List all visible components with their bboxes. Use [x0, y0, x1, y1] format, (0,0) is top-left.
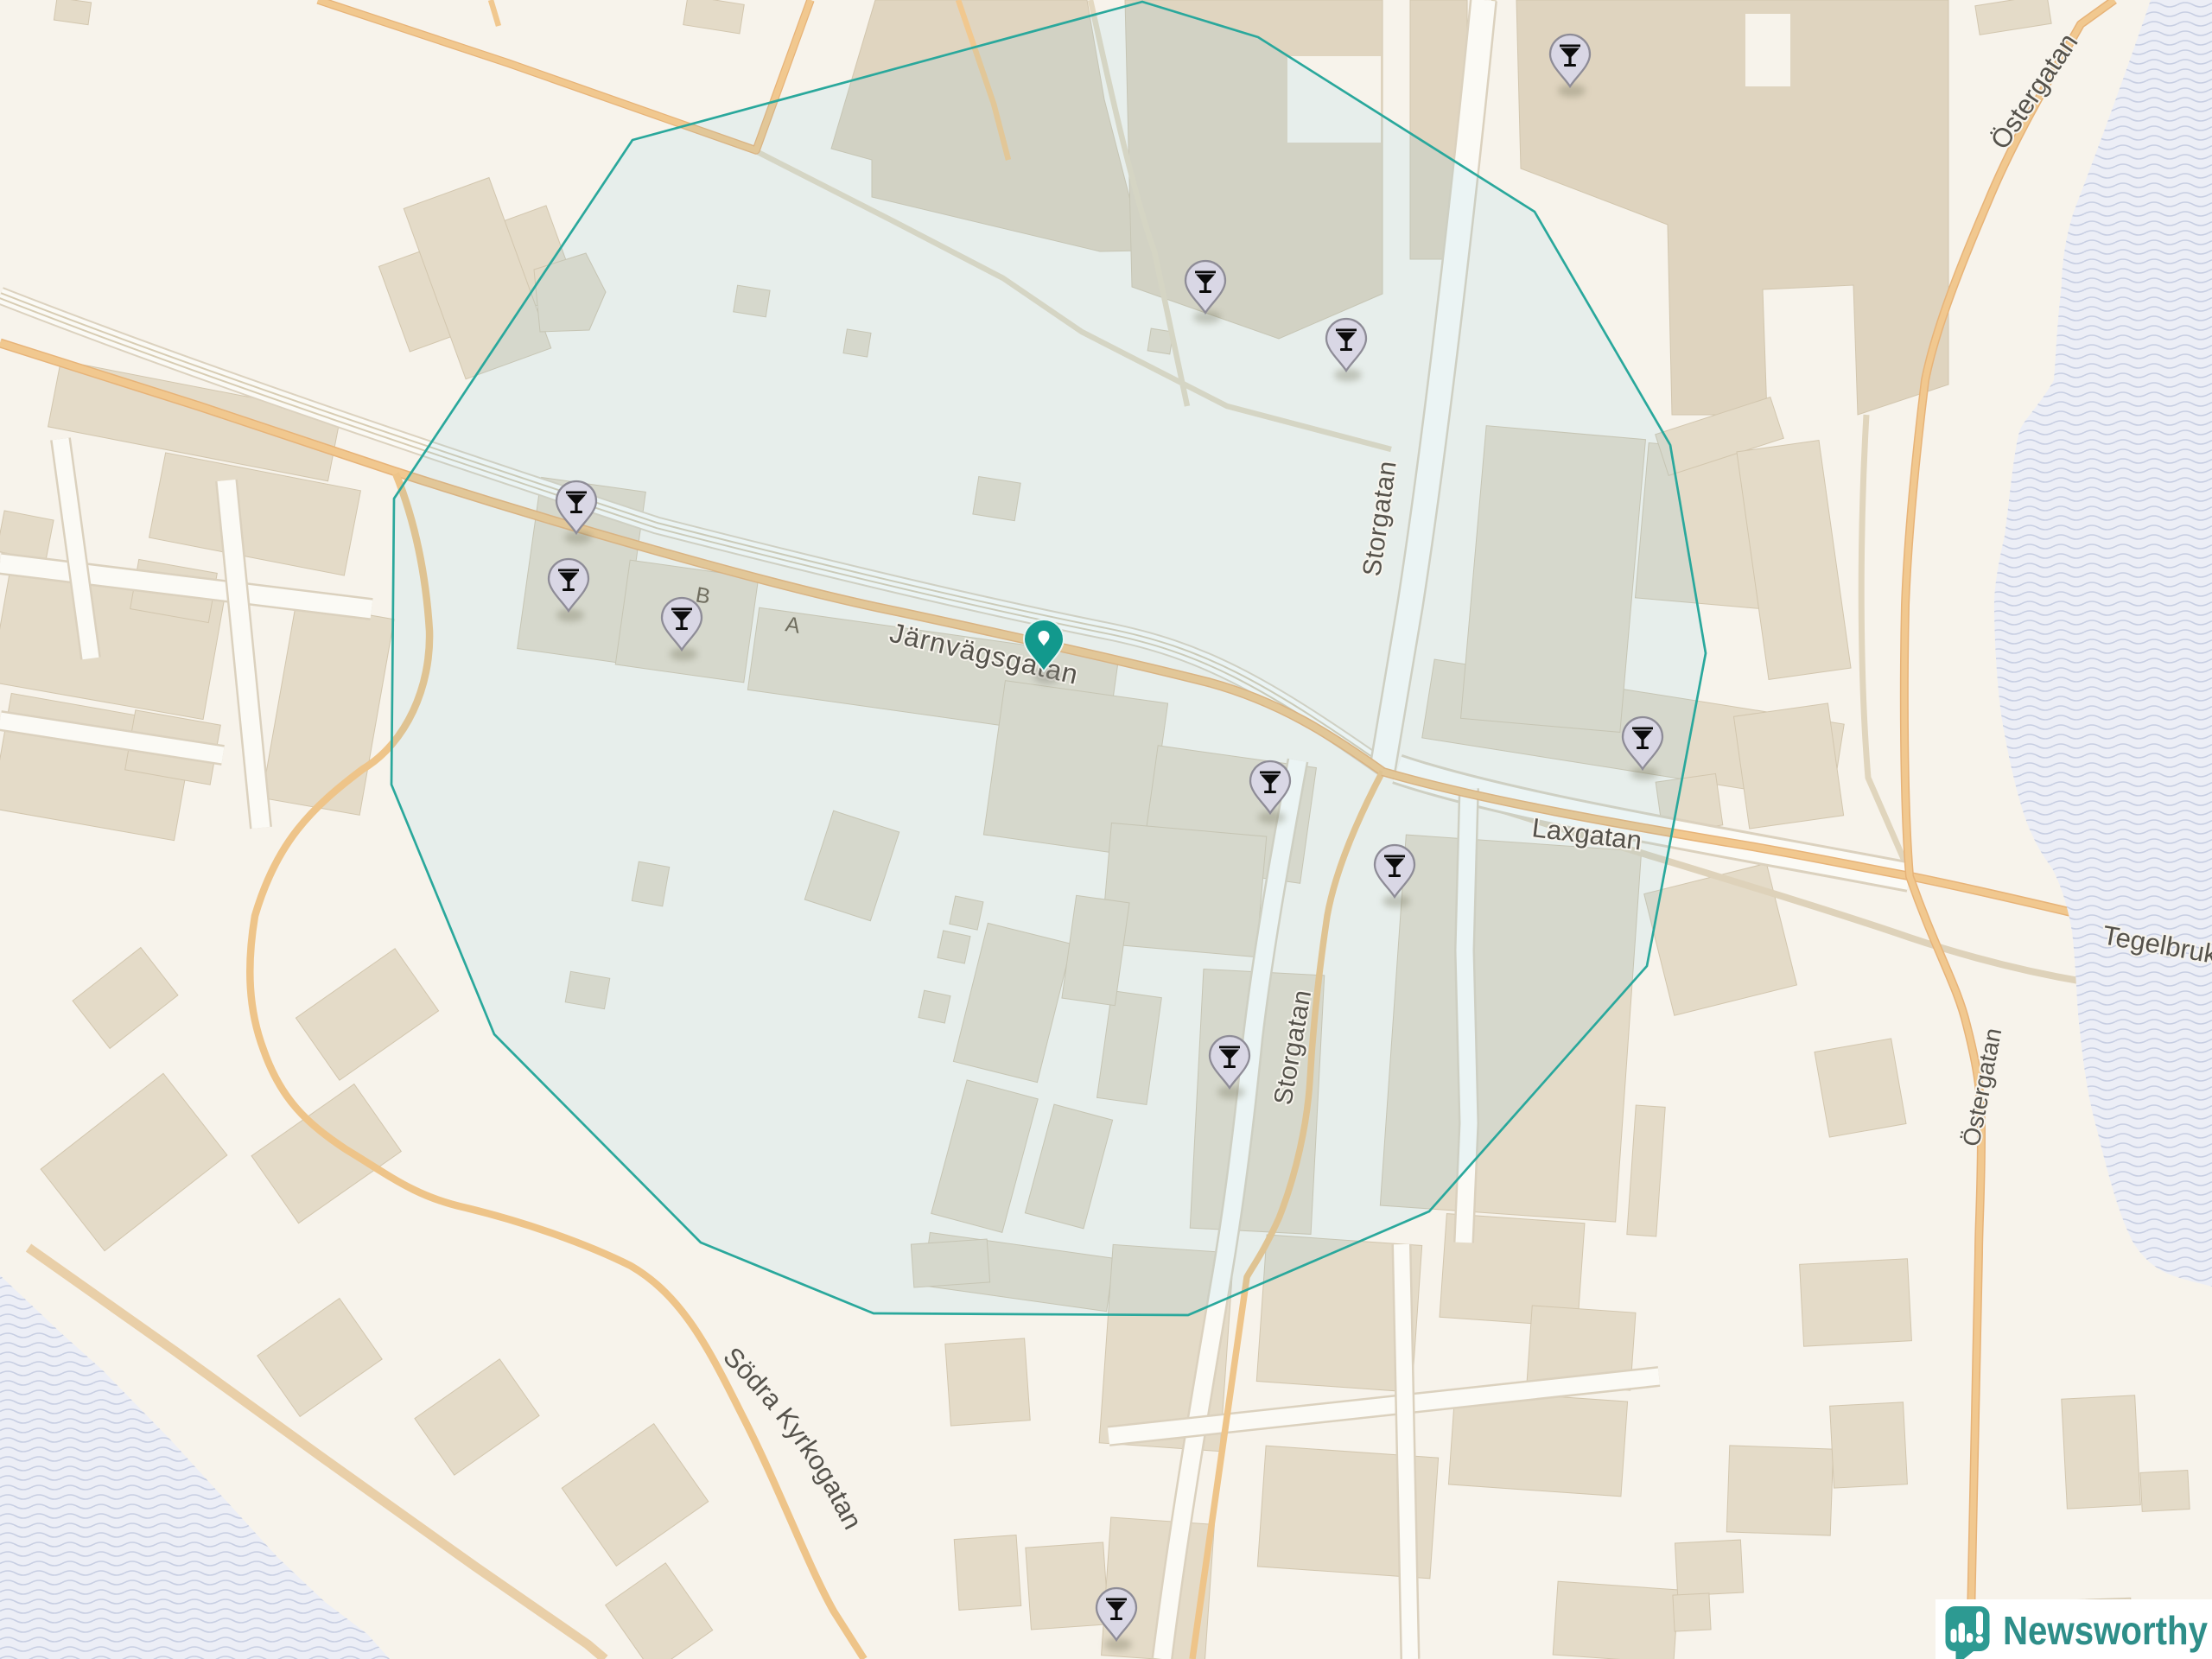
svg-text:Newsworthy: Newsworthy [2003, 1608, 2208, 1653]
